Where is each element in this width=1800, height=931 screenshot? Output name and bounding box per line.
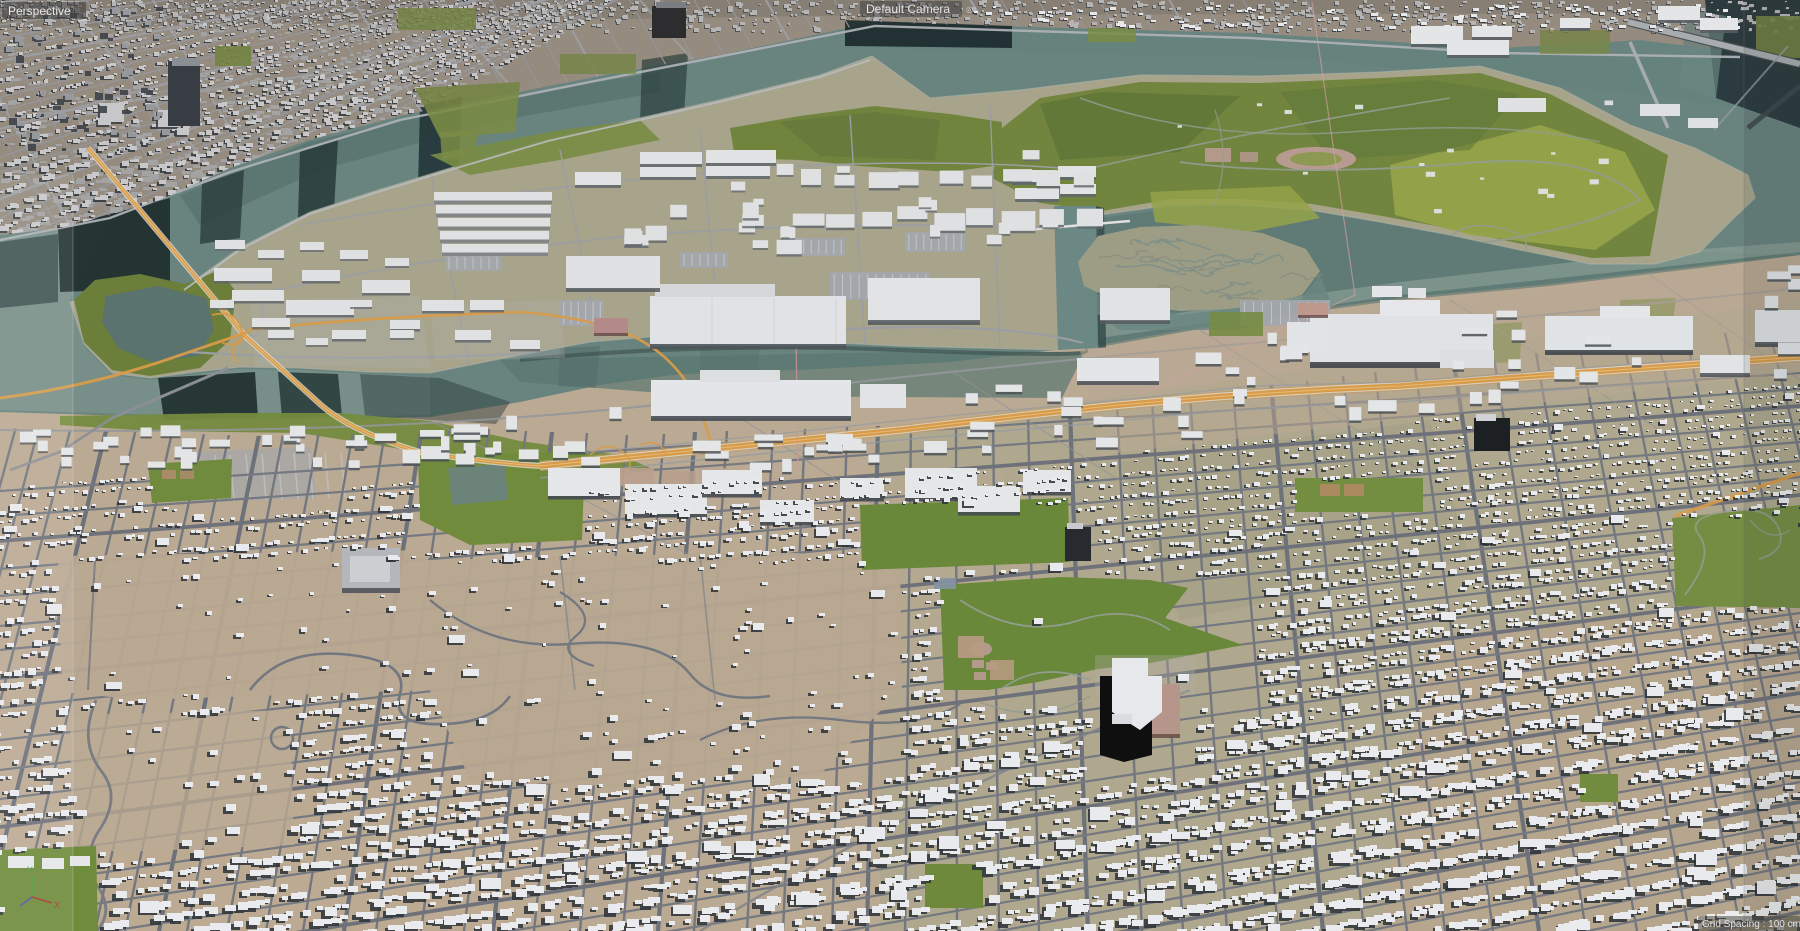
svg-text:Default Camera: Default Camera <box>866 2 950 16</box>
svg-text:X: X <box>54 900 60 910</box>
svg-text:Perspective: Perspective <box>8 4 71 18</box>
svg-text:Grid Spacing : 100 cm: Grid Spacing : 100 cm <box>1702 919 1800 930</box>
svg-text:◎: ◎ <box>966 5 973 14</box>
svg-text:Y: Y <box>27 865 33 875</box>
